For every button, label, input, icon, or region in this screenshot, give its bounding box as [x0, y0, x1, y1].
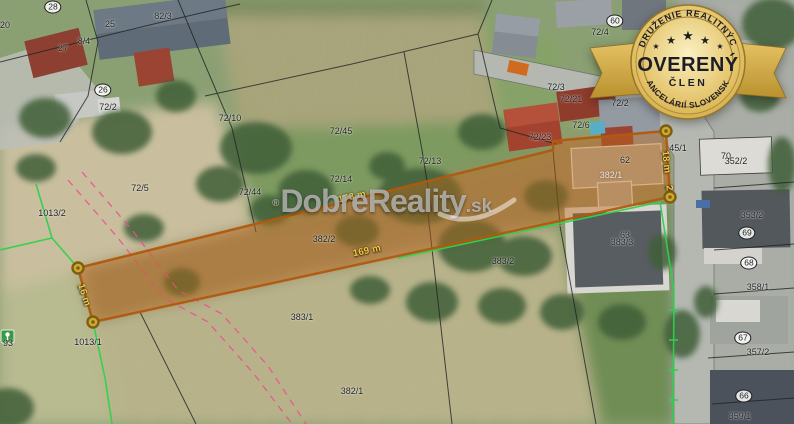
svg-text:★: ★ [716, 42, 723, 51]
registered-mark: ® [272, 198, 279, 209]
badge-title: OVERENÝ [637, 52, 738, 76]
poi-icon [1, 330, 14, 343]
svg-text:★: ★ [666, 35, 676, 47]
svg-text:★: ★ [700, 35, 710, 47]
svg-text:★: ★ [682, 28, 694, 43]
verified-badge: ZDRUŽENIE REALITNÝCH KANCELÁRIÍ SLOVENSK… [588, 0, 788, 130]
watermark-swoosh [436, 196, 520, 226]
map-image: 82/320258/42772/272/472/372/2172/272/672… [0, 0, 794, 424]
svg-text:★: ★ [652, 42, 659, 51]
badge-subtitle: ČLEN [669, 76, 708, 89]
